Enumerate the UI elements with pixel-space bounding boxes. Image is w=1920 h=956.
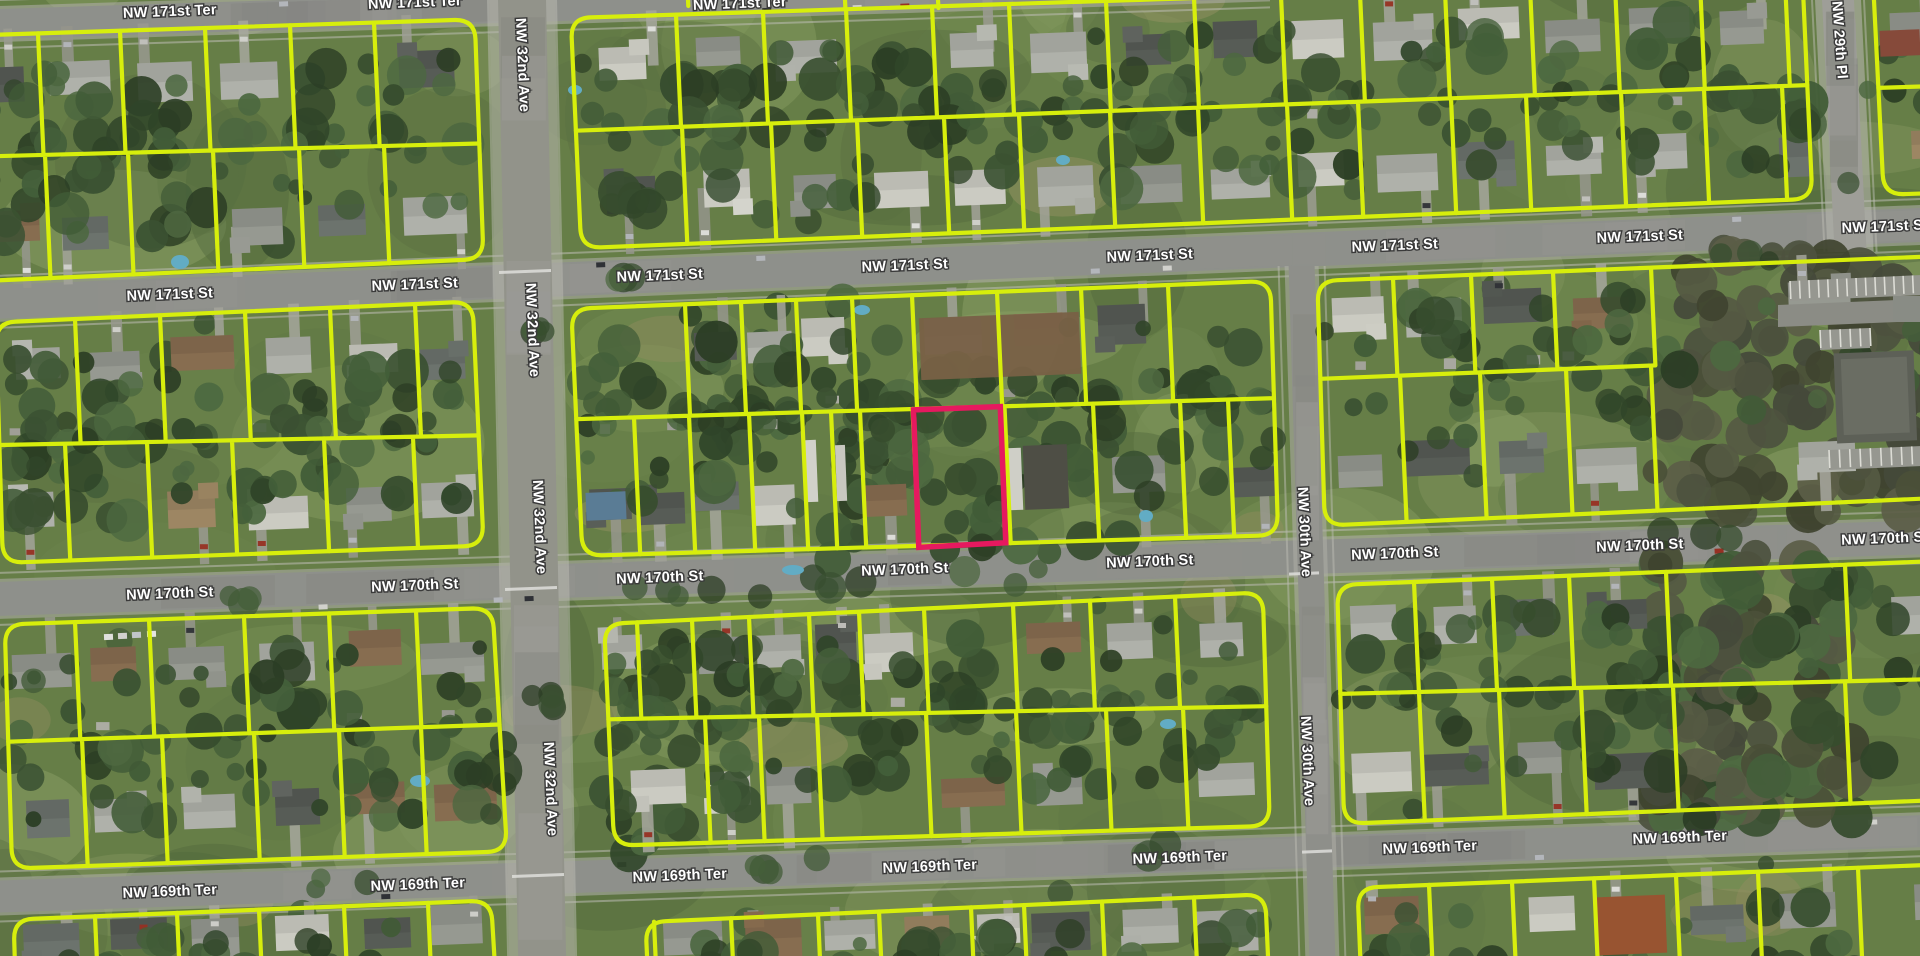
svg-text:NW 170th St: NW 170th St [1841, 529, 1920, 548]
svg-text:NW 171st St: NW 171st St [1841, 217, 1920, 236]
